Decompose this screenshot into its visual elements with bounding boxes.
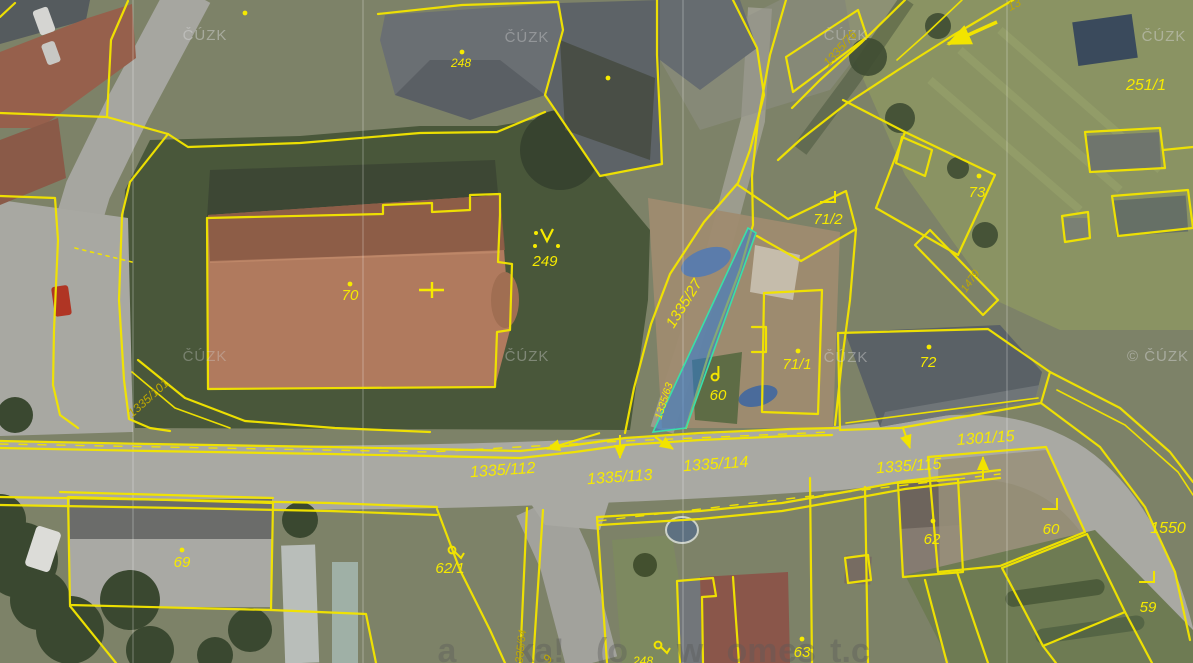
- roof: [1064, 218, 1088, 240]
- parcel-label: 248: [632, 654, 653, 663]
- bottom-watermark-fragment: t.c: [830, 632, 870, 663]
- cuzk-watermark: ČÚZK: [1142, 28, 1187, 45]
- parcel-label: 248: [450, 56, 471, 70]
- boundary-point-marker: [796, 349, 801, 354]
- parcel-label: 249: [531, 253, 558, 270]
- boundary-point-marker: [800, 637, 805, 642]
- cuzk-watermark: ČÚZK: [183, 27, 228, 44]
- boundary-point-marker: [606, 76, 611, 81]
- parcel-label: 70: [342, 287, 359, 304]
- parcel-label: 60: [1043, 521, 1060, 538]
- building-69-roof-north: [70, 499, 272, 539]
- church-symbol-dot: [534, 231, 538, 235]
- boundary-point-marker: [180, 548, 185, 553]
- boundary-point-marker: [931, 519, 936, 524]
- bottom-watermark-fragment: (o: [596, 632, 628, 663]
- parcel-label: 59: [1140, 599, 1157, 616]
- roof: [1087, 132, 1161, 172]
- parcel-label: 62: [924, 531, 941, 548]
- tree: [633, 553, 657, 577]
- parcel-label: 71/2: [813, 211, 843, 228]
- cuzk-watermark: ČÚZK: [505, 29, 550, 46]
- church-apse: [491, 272, 519, 328]
- parcel-label: 63: [794, 644, 811, 661]
- cadastral-map-viewport[interactable]: ČÚZKČÚZKČÚZKČÚZKČÚZKČÚZKČÚZK© ČÚZKaka!(o…: [0, 0, 1193, 663]
- cuzk-watermark: ČÚZK: [824, 349, 869, 366]
- parcel-label: 69: [174, 554, 191, 571]
- boundary-point-marker: [927, 345, 932, 350]
- boundary-point-marker: [243, 11, 248, 16]
- bottom-watermark-fragment: w: [676, 632, 704, 663]
- parcel-label: 1550: [1150, 520, 1186, 537]
- bottom-watermark-fragment: a: [438, 632, 458, 663]
- church-symbol-dot: [533, 244, 537, 248]
- boundary-point-marker: [977, 174, 982, 179]
- boundary-point-marker: [348, 282, 353, 287]
- parcel-label: 60: [710, 387, 727, 404]
- boundary-point-marker: [460, 50, 465, 55]
- church-symbol-dot: [556, 244, 560, 248]
- parcel-label: 72: [920, 354, 937, 371]
- cuzk-watermark: © ČÚZK: [1127, 348, 1189, 365]
- solar-roof: [1072, 14, 1138, 66]
- parcel-label: 62/1: [435, 560, 464, 577]
- bottom-watermark-fragment: om: [727, 632, 778, 663]
- parcel-label: 71/1: [782, 356, 811, 373]
- parcel-label: 251/1: [1125, 77, 1166, 94]
- parcel-label: 73: [969, 184, 986, 201]
- cuzk-watermark: ČÚZK: [183, 348, 228, 365]
- cuzk-watermark: ČÚZK: [505, 348, 550, 365]
- greenhouse: [281, 544, 319, 663]
